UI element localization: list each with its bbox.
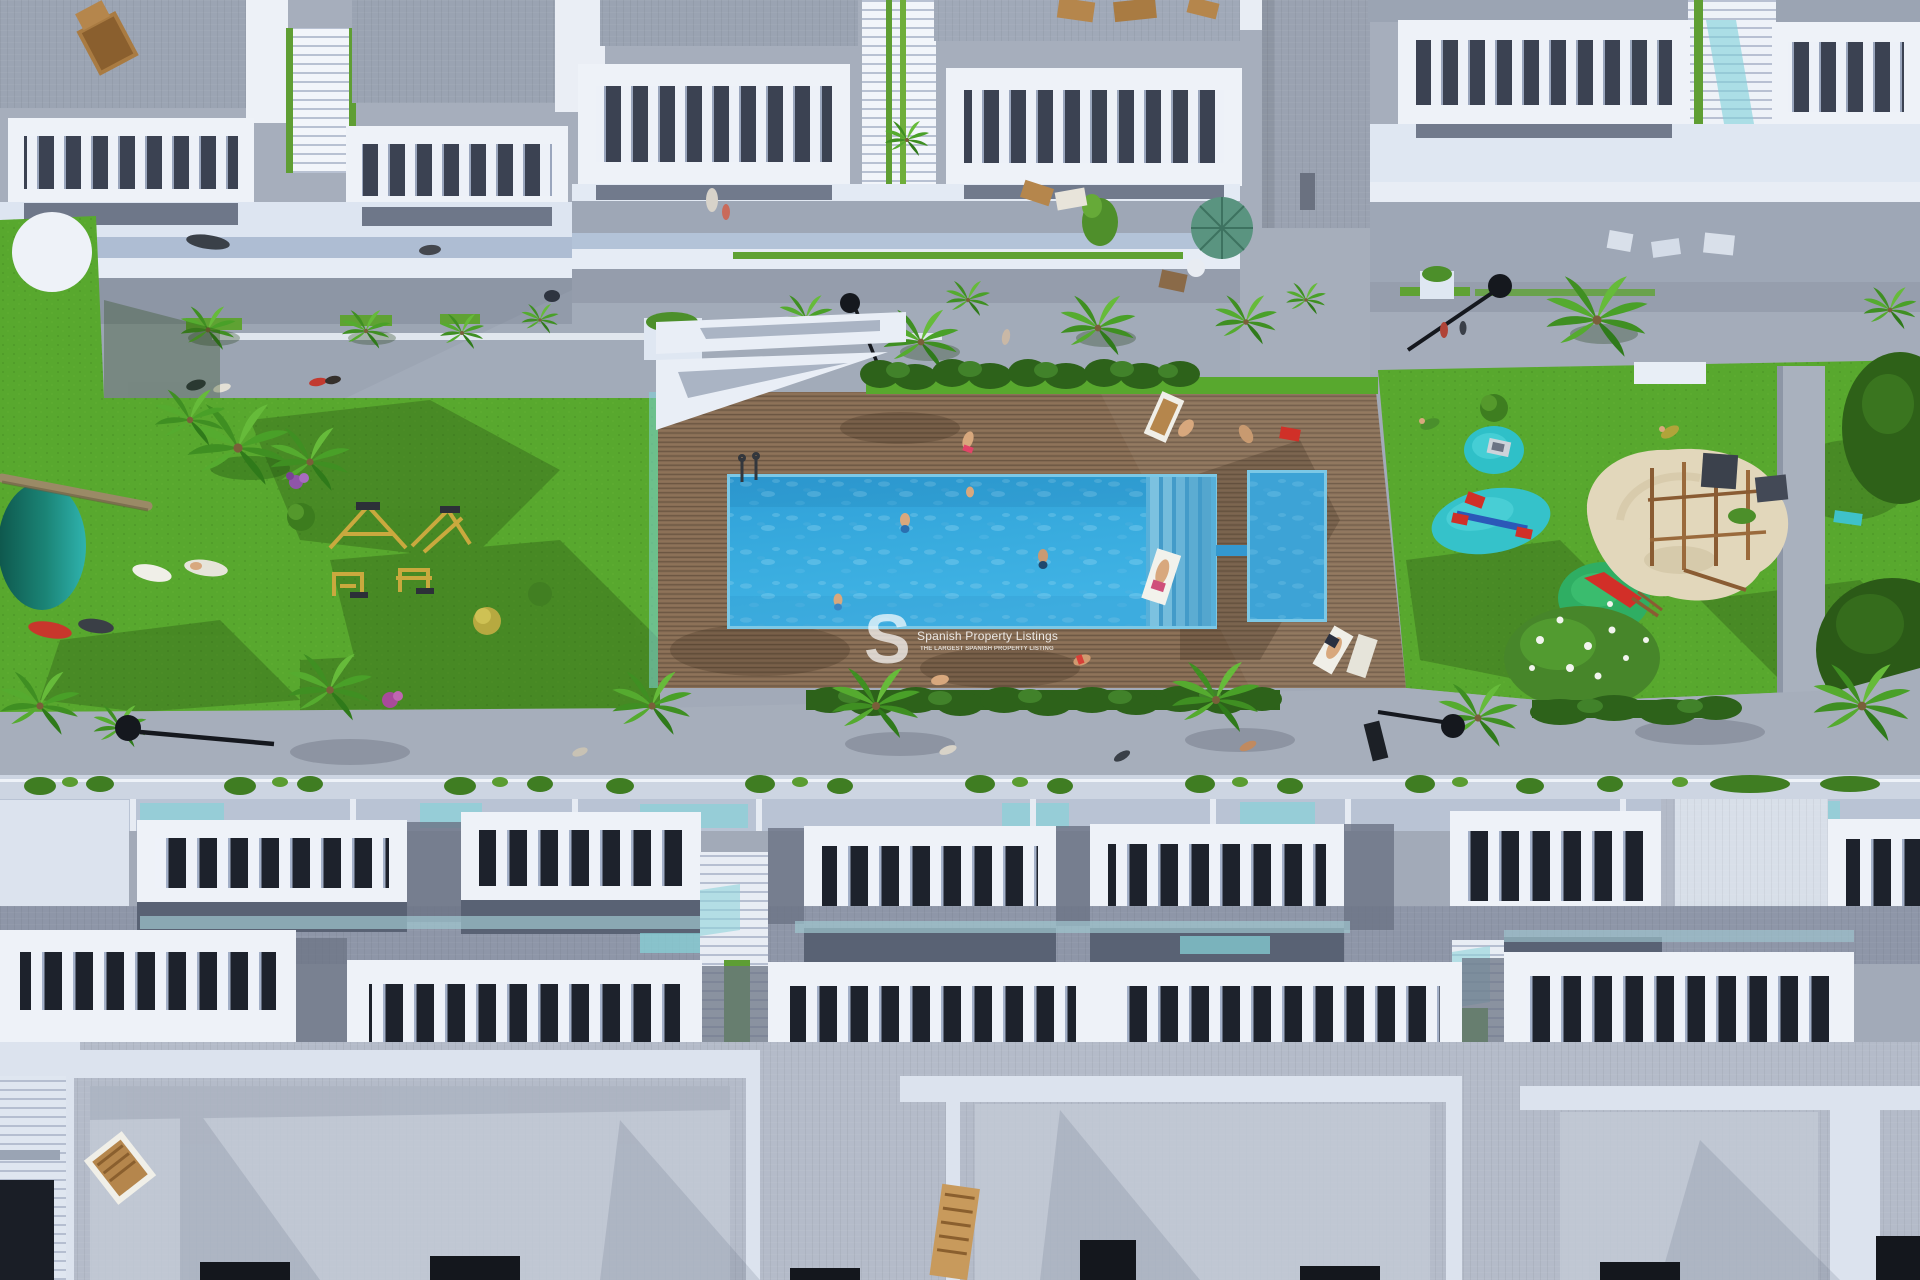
svg-text:Spanish Property Listings: Spanish Property Listings <box>917 629 1058 643</box>
svg-text:THE LARGEST SPANISH PROPERTY L: THE LARGEST SPANISH PROPERTY LISTING <box>920 646 1054 652</box>
svg-text:S: S <box>864 600 911 678</box>
